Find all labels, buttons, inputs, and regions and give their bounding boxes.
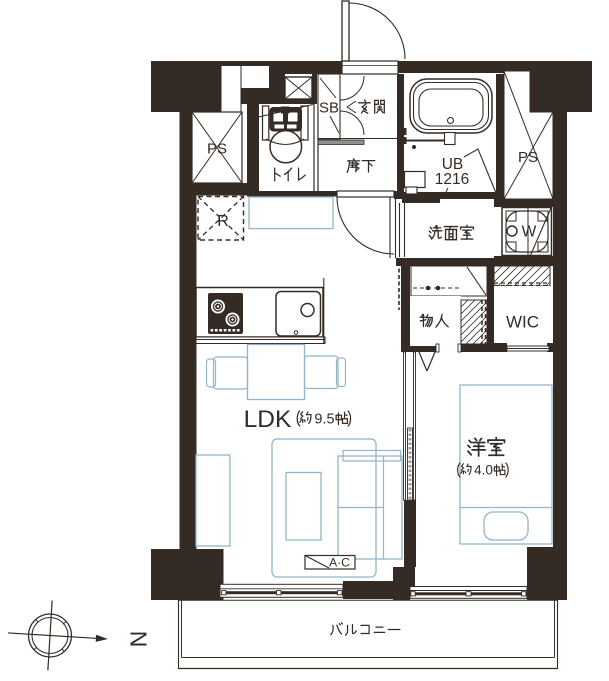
- svg-text:LDK: LDK: [244, 406, 292, 433]
- svg-text:A·C: A·C: [329, 556, 350, 570]
- svg-text:SB: SB: [319, 100, 339, 117]
- svg-text:4.0: 4.0: [474, 463, 493, 478]
- svg-text:9.5: 9.5: [314, 412, 334, 428]
- svg-text:1216: 1216: [435, 171, 469, 188]
- svg-text:W: W: [522, 224, 537, 241]
- svg-text:WIC: WIC: [506, 313, 539, 332]
- svg-text:PS: PS: [518, 149, 538, 166]
- svg-text:PS: PS: [207, 140, 227, 157]
- svg-text:N: N: [126, 631, 152, 648]
- svg-text:R: R: [217, 213, 229, 230]
